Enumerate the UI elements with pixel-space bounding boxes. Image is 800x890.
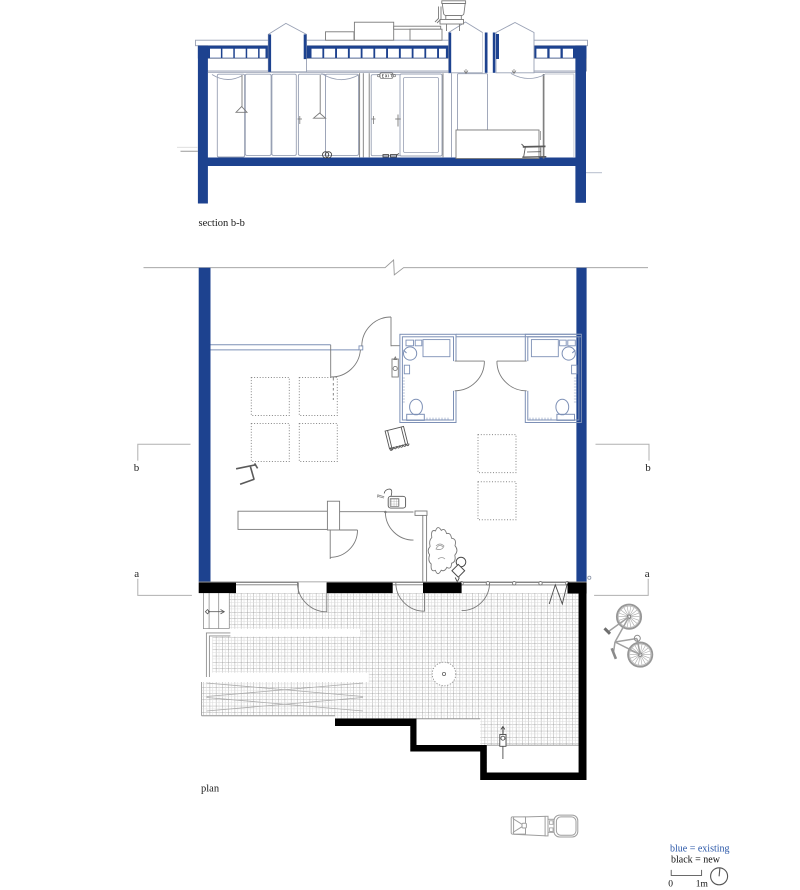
svg-text:section b-b: section b-b	[199, 218, 245, 229]
svg-text:black = new: black = new	[671, 855, 721, 866]
svg-text:b: b	[645, 462, 651, 474]
svg-text:a: a	[645, 568, 650, 580]
svg-text:plan: plan	[201, 784, 220, 795]
svg-text:0: 0	[668, 879, 673, 889]
svg-text:1m: 1m	[696, 879, 709, 889]
svg-text:blue = existing: blue = existing	[670, 844, 730, 855]
svg-text:b: b	[134, 462, 140, 474]
svg-text:a: a	[134, 568, 139, 580]
